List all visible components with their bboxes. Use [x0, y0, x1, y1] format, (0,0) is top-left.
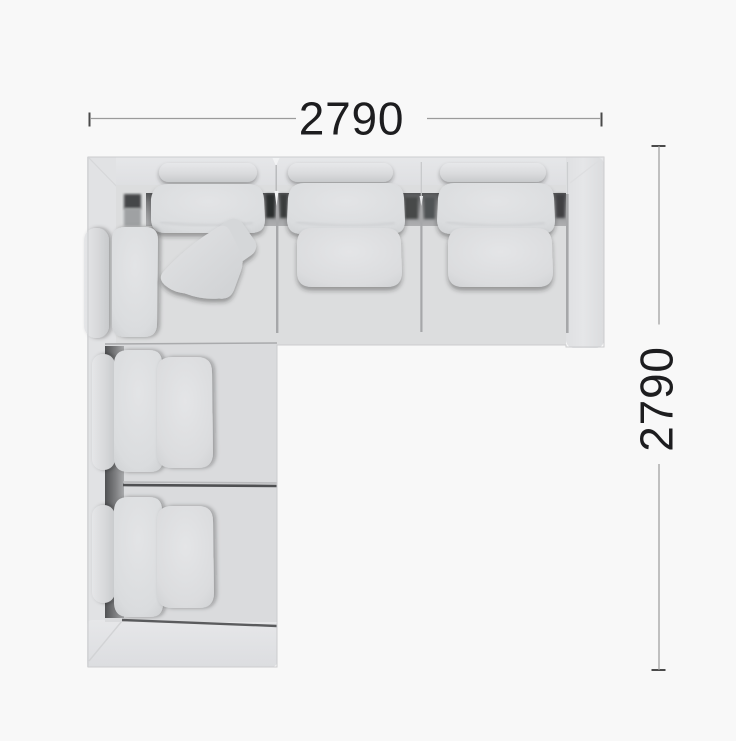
svg-text:2790: 2790 [631, 346, 683, 452]
svg-text:2790: 2790 [299, 93, 405, 145]
